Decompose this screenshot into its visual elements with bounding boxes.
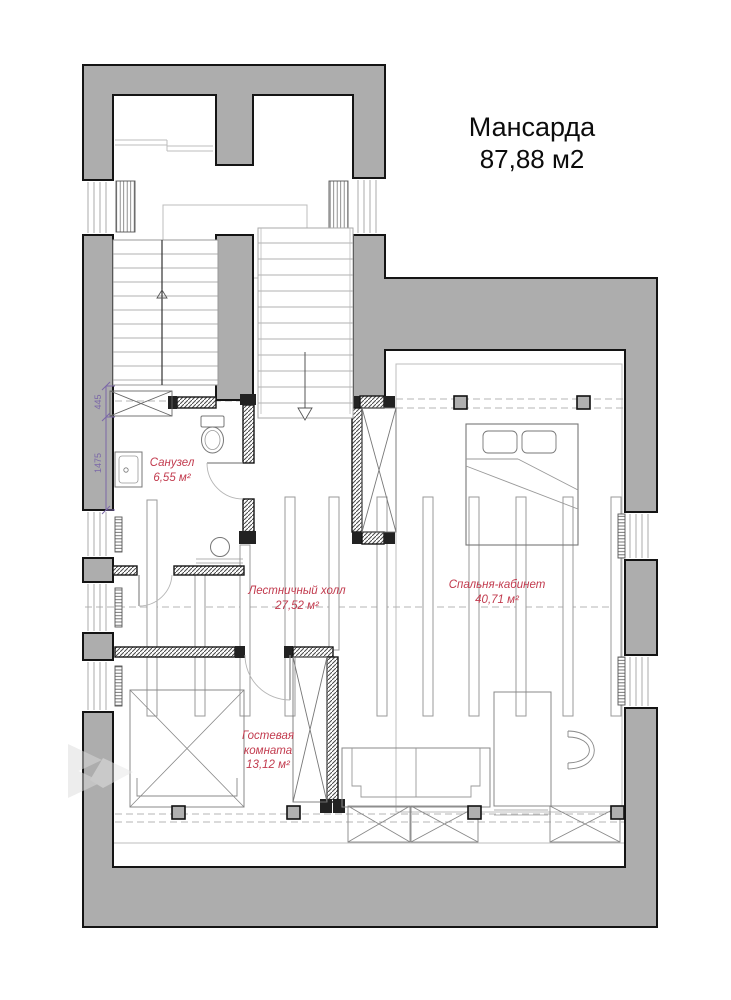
bathroom-right-wall-upper: [243, 405, 254, 463]
room-name: Гостевая комната: [234, 729, 302, 758]
wall-left-pier-3: [83, 633, 113, 660]
room-name: Лестничный холл: [215, 584, 379, 599]
pillow-right: [522, 431, 556, 453]
doors: [139, 463, 290, 700]
radiator-left-2: [115, 588, 122, 627]
roof-windows-bottom: [348, 806, 620, 842]
room-label-bathroom: Санузел 6,55 м²: [111, 456, 233, 485]
radiator-left-3: [115, 666, 122, 706]
bathroom-south-wall-left: [113, 566, 137, 575]
guest-room-right-wall: [327, 657, 338, 802]
pillow-left: [483, 431, 517, 453]
floor-name: Мансарда: [428, 111, 636, 144]
dimension-445: 445: [93, 394, 103, 409]
guest-room-corner-wall: [293, 647, 333, 657]
room-area: 40,71 м²: [415, 593, 579, 608]
radiator-top-left: [116, 181, 135, 232]
stair-side-wall: [352, 408, 362, 532]
bathroom-top-wall: [177, 397, 216, 408]
room-area: 13,12 м²: [234, 758, 302, 773]
room-name: Спальня-кабинет: [415, 578, 579, 593]
bathroom-south-wall-right: [174, 566, 244, 575]
radiator-right-2: [618, 657, 625, 705]
room-name: Санузел: [111, 456, 233, 471]
bathroom-roof-window: [110, 391, 172, 416]
room-area: 27,52 м²: [215, 599, 379, 614]
wall-bottom-band: [83, 708, 657, 927]
wall-right-pier: [625, 560, 657, 655]
stair-side-wall-cap-top: [360, 396, 384, 408]
room-label-bedroom-office: Спальня-кабинет 40,71 м²: [415, 578, 579, 607]
toilet: [201, 416, 224, 453]
floor-area: 87,88 м2: [428, 144, 636, 176]
guest-door-swing: [245, 655, 290, 700]
wall-chimney-pier: [216, 235, 253, 400]
wall-top-block: [83, 65, 385, 180]
wall-right-mass: [353, 235, 657, 512]
room-area: 6,55 м²: [111, 471, 233, 486]
dimension-1475: 1475: [93, 453, 103, 473]
room-label-stair-hall: Лестничный холл 27,52 м²: [215, 584, 379, 613]
radiator-left-1: [115, 517, 122, 552]
shower-unit: [196, 538, 243, 564]
guest-bed: [130, 690, 244, 807]
bathroom-right-wall-lower: [243, 499, 254, 533]
stair-side-wall-cap-bottom: [362, 532, 384, 544]
floor-plan-canvas: 445 1475 Мансарда 87,88 м2 Санузел 6,55 …: [0, 0, 731, 1000]
stair-flight-center: [258, 228, 353, 420]
wall-left-pier-2: [83, 558, 113, 582]
radiator-right-1: [618, 514, 625, 558]
desk-chair: [568, 731, 594, 769]
plan-title: Мансарда 87,88 м2: [428, 111, 636, 176]
sofa: [342, 748, 490, 807]
radiator-top-right: [329, 181, 348, 232]
room-label-guest-room: Гостевая комната 13,12 м²: [234, 729, 302, 773]
stair-flight-left: [113, 240, 218, 385]
guest-room-top-wall: [115, 647, 235, 657]
